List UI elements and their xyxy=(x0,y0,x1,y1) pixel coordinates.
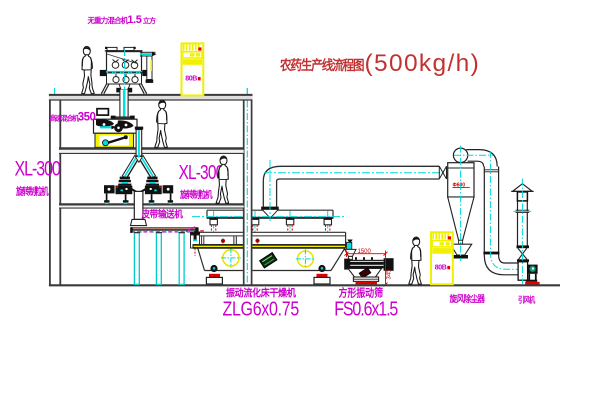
svg-text:345: 345 xyxy=(387,269,393,280)
svg-text:旋转制粒机: 旋转制粒机 xyxy=(15,185,49,198)
svg-text:旋转制粒机: 旋转制粒机 xyxy=(179,188,213,200)
svg-text:旋风除尘器: 旋风除尘器 xyxy=(449,293,486,304)
svg-text:ZLG6x0.75: ZLG6x0.75 xyxy=(223,298,300,320)
svg-text:皮带输送机: 皮带输送机 xyxy=(141,208,184,220)
svg-text:1500: 1500 xyxy=(358,249,372,255)
svg-text:引风机: 引风机 xyxy=(518,295,536,305)
svg-text:FS0.6x1.5: FS0.6x1.5 xyxy=(334,298,398,320)
svg-text:XL-300: XL-300 xyxy=(179,161,225,184)
svg-text:农药生产线流程图: 农药生产线流程图 xyxy=(279,57,364,73)
svg-text:(500kg/h): (500kg/h) xyxy=(365,50,481,77)
svg-text:XL-300: XL-300 xyxy=(15,157,61,181)
